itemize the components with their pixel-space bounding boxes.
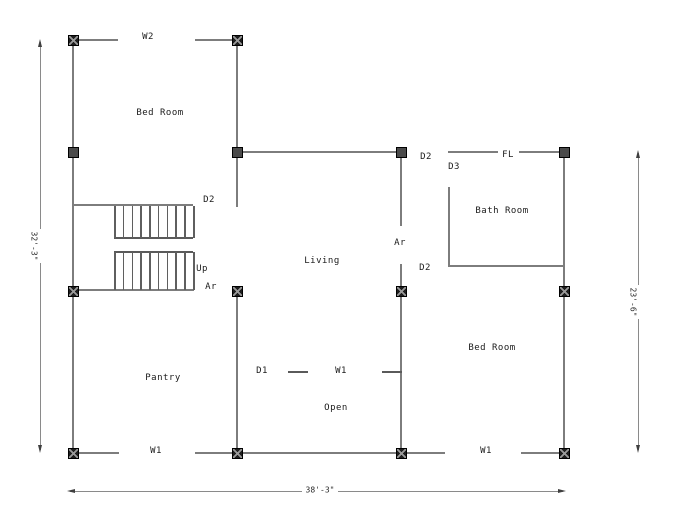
column-marker-x <box>68 286 79 297</box>
dimension-label-right: 23'-6" <box>629 288 638 317</box>
stair-tread <box>114 252 116 290</box>
column-marker-x <box>232 35 243 46</box>
opening-label-w1: W1 <box>150 446 162 456</box>
stair-tread <box>114 206 116 238</box>
opening-label-up: Up <box>196 264 208 274</box>
stair-tread <box>175 206 177 238</box>
stair-tread <box>132 206 134 238</box>
room-label-open: Open <box>324 403 348 413</box>
opening-label-d1: D1 <box>256 366 268 376</box>
opening-label-w2: W2 <box>142 32 154 42</box>
dimension-arrow-down <box>38 445 42 453</box>
column-marker-solid <box>396 147 407 158</box>
opening-label-ar: Ar <box>394 238 406 248</box>
stair-tread <box>149 252 151 290</box>
stair-tread <box>158 252 160 290</box>
wall <box>400 158 402 226</box>
stair-tread <box>140 206 142 238</box>
stair-tread <box>193 252 195 290</box>
opening-label-d3: D3 <box>448 162 460 172</box>
wall <box>448 151 498 153</box>
dimension-label-bottom: 38'-3" <box>304 486 337 495</box>
stair-tread <box>184 206 186 238</box>
column-marker-x <box>68 448 79 459</box>
dimension-arrow-up <box>636 150 640 158</box>
dimension-line-left <box>40 263 41 450</box>
stair-tread <box>158 206 160 238</box>
wall <box>72 39 74 454</box>
thin-line <box>114 237 193 239</box>
stair-tread <box>167 252 169 290</box>
dimension-line-right <box>638 153 639 285</box>
wall <box>400 297 402 448</box>
thin-line <box>114 251 193 253</box>
dimension-arrow-up <box>38 39 42 47</box>
wall <box>78 452 119 454</box>
dimension-line-bottom <box>70 491 302 492</box>
dimension-line-right <box>638 319 639 450</box>
opening-label-d2: D2 <box>419 263 431 273</box>
column-marker-x <box>559 286 570 297</box>
stair-tread <box>175 252 177 290</box>
stair-tread <box>132 252 134 290</box>
stair-tread <box>140 252 142 290</box>
thin-line <box>288 371 308 373</box>
wall <box>242 151 402 153</box>
column-marker-x <box>396 448 407 459</box>
dimension-line-left <box>40 42 41 229</box>
dimension-arrow-down <box>636 445 640 453</box>
opening-label-ar: Ar <box>205 282 217 292</box>
stair-tread <box>123 252 125 290</box>
column-marker-x <box>68 35 79 46</box>
stair-tread <box>193 206 195 238</box>
stair-tread <box>149 206 151 238</box>
dimension-line-bottom <box>338 491 563 492</box>
column-marker-solid <box>232 147 243 158</box>
wall <box>448 187 450 267</box>
column-marker-x <box>396 286 407 297</box>
column-marker-solid <box>559 147 570 158</box>
opening-label-fl: FL <box>502 150 514 160</box>
column-marker-x <box>559 448 570 459</box>
wall <box>236 39 238 153</box>
wall <box>406 452 445 454</box>
dimension-label-left: 32'-3" <box>30 232 39 261</box>
room-label-bath-room: Bath Room <box>475 206 528 216</box>
dimension-arrow-right <box>558 489 566 493</box>
wall <box>236 297 238 448</box>
stair-tread <box>123 206 125 238</box>
opening-label-w1: W1 <box>480 446 492 456</box>
room-label-pantry: Pantry <box>145 373 181 383</box>
room-label-bed-room: Bed Room <box>468 343 515 353</box>
wall <box>78 39 118 41</box>
opening-label-d2: D2 <box>203 195 215 205</box>
room-label-living: Living <box>304 256 340 266</box>
opening-label-d2: D2 <box>420 152 432 162</box>
column-marker-x <box>232 448 243 459</box>
thin-line <box>382 371 402 373</box>
column-marker-solid <box>68 147 79 158</box>
floor-plan-canvas: Bed RoomLivingBath RoomPantryOpenBed Roo… <box>0 0 674 526</box>
stair-tread <box>167 206 169 238</box>
wall <box>563 151 565 454</box>
wall <box>448 265 565 267</box>
stair-tread <box>184 252 186 290</box>
wall <box>242 452 402 454</box>
wall <box>400 264 402 286</box>
dimension-arrow-left <box>67 489 75 493</box>
room-label-bed-room: Bed Room <box>136 108 183 118</box>
wall <box>236 151 238 207</box>
opening-label-w1: W1 <box>335 366 347 376</box>
column-marker-x <box>232 286 243 297</box>
